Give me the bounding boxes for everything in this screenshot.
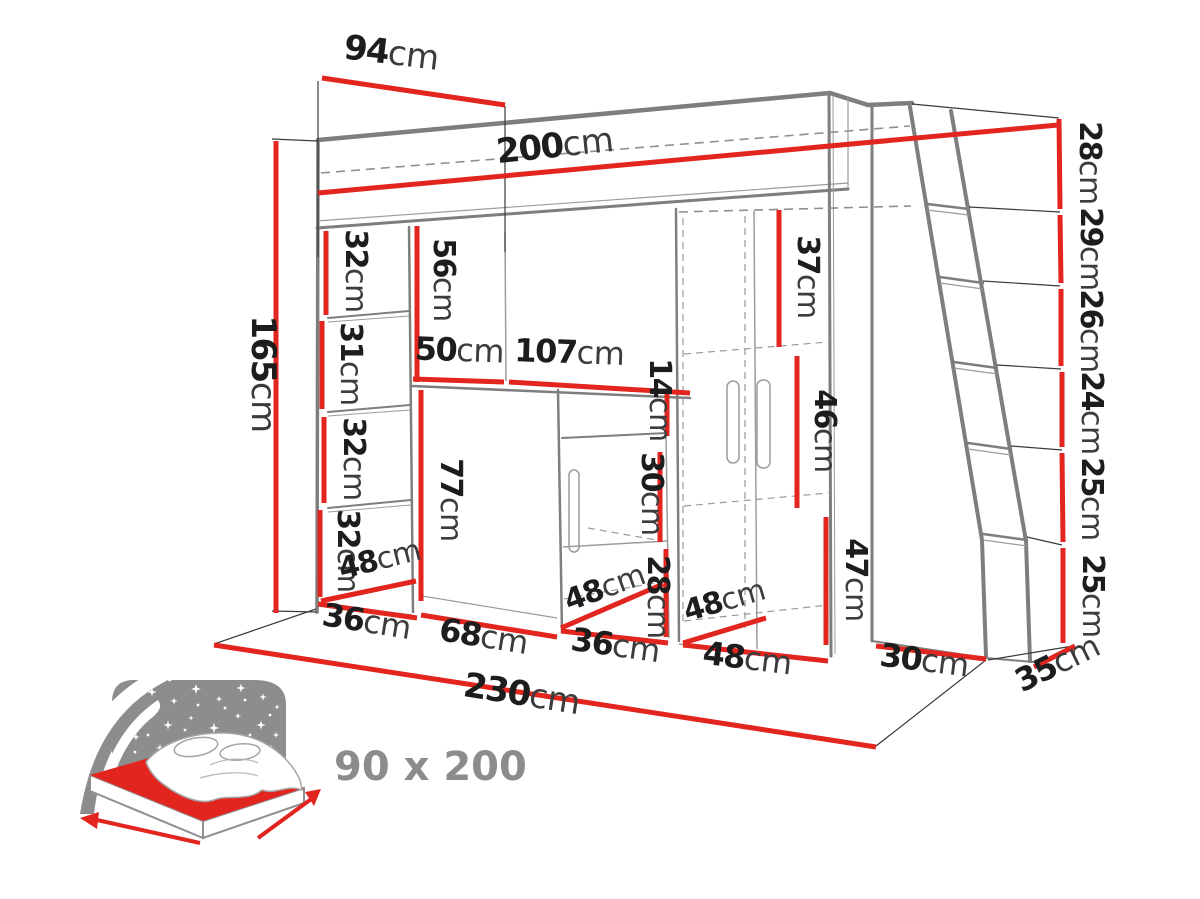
- dim-label-47: 47cm: [838, 538, 873, 621]
- bed-size-label: 90 x 200: [334, 744, 527, 790]
- wardrobe-right-panel-inner: [833, 96, 835, 654]
- dimline-200: [318, 125, 1058, 193]
- desk-right-panel: [558, 390, 562, 632]
- dim-label-107: 107cm: [514, 331, 625, 373]
- dim-label-200: 200cm: [494, 120, 615, 172]
- hutch-divider: [505, 232, 506, 381]
- width-arrow-head: [80, 812, 99, 829]
- wardrobe-handle-left: [727, 381, 739, 463]
- wardrobe-right-panel: [829, 94, 831, 656]
- ladder: [910, 107, 1033, 662]
- dim-label-shelf-31: 31cm: [333, 322, 368, 405]
- dim-label-shelf-32b: 32cm: [336, 417, 371, 500]
- dim-label-46: 46cm: [807, 389, 842, 472]
- dim-label-step-25a: 25cm: [1074, 457, 1109, 540]
- dim-label-30-end: 30cm: [878, 636, 971, 685]
- dim-label-step-26: 26cm: [1073, 289, 1108, 372]
- dimline-left-shelves: [320, 231, 326, 597]
- dim-label-step-28: 28cm: [1072, 121, 1107, 204]
- dim-label-77: 77cm: [433, 458, 468, 541]
- dim-label-68: 68cm: [437, 610, 531, 662]
- dimline-ladder-steps: [1059, 119, 1063, 643]
- dim-label-14: 14cm: [642, 358, 677, 441]
- dim-label-37: 37cm: [790, 235, 825, 318]
- side-cabinet-handle: [569, 470, 579, 552]
- dim-label-step-24: 24cm: [1074, 371, 1109, 454]
- dim-label-28-cabinet: 28cm: [640, 555, 675, 638]
- wardrobe-hidden-verticals: [683, 216, 745, 628]
- diagram-svg: 94cm 200cm 28cm 29cm 26cm 24cm 25cm 25cm…: [0, 0, 1200, 899]
- ext-230-left: [214, 609, 316, 644]
- dim-label-50: 50cm: [414, 329, 505, 370]
- dim-label-step-29: 29cm: [1073, 207, 1108, 290]
- bed-underside: [317, 189, 848, 228]
- ladder-rail-left: [910, 107, 986, 656]
- wardrobe-top-hidden: [679, 206, 911, 212]
- ladder-rail-right: [951, 111, 1030, 661]
- dim-label-step-25b: 25cm: [1075, 554, 1110, 637]
- dim-label-30-cabinet: 30cm: [634, 452, 669, 535]
- dim-label-56: 56cm: [426, 238, 461, 321]
- bed-underside-inner: [317, 183, 848, 221]
- furniture-dimension-diagram: 94cm 200cm 28cm 29cm 26cm 24cm 25cm 25cm…: [0, 0, 1200, 899]
- dim-label-94: 94cm: [342, 27, 441, 78]
- bed-size-icon: 90 x 200: [58, 660, 527, 843]
- dim-label-48-wardrobe-width: 48cm: [701, 634, 794, 683]
- wardrobe-handle-right: [757, 380, 770, 468]
- dim-label-165: 165cm: [243, 315, 283, 432]
- dim-label-230: 230cm: [461, 665, 583, 723]
- dimline-94: [322, 78, 505, 105]
- dim-label-35: 35cm: [1009, 626, 1106, 699]
- dim-label-36-left: 36cm: [320, 595, 414, 647]
- dim-label-shelf-32a: 32cm: [338, 229, 373, 312]
